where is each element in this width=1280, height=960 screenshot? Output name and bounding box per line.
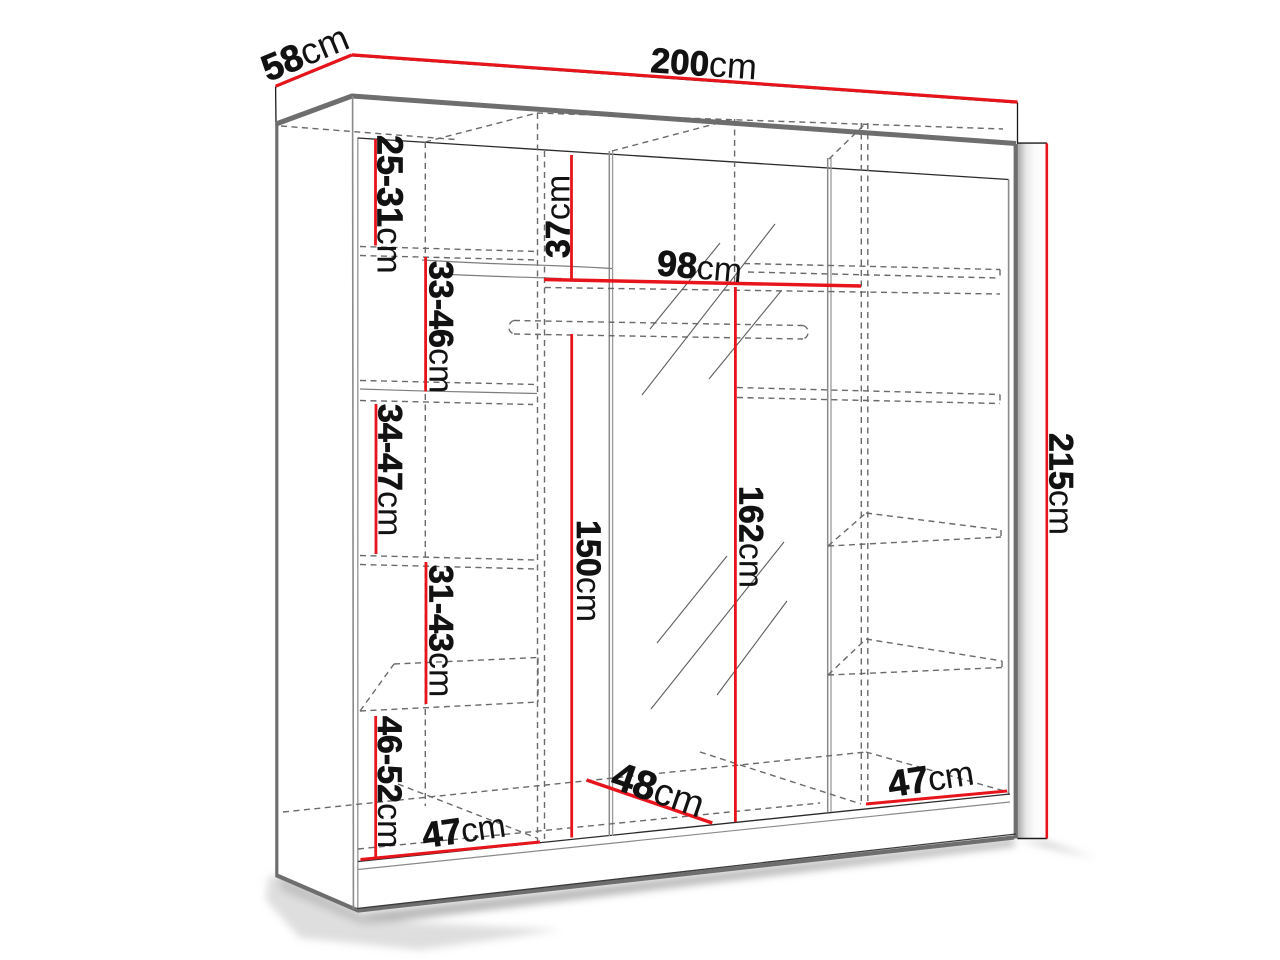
svg-text:33-46cm: 33-46cm bbox=[422, 261, 460, 393]
svg-text:150cm: 150cm bbox=[569, 520, 607, 622]
svg-text:200cm: 200cm bbox=[649, 39, 758, 87]
svg-text:25-31cm: 25-31cm bbox=[370, 135, 411, 274]
svg-text:162cm: 162cm bbox=[732, 486, 770, 588]
svg-text:31-43cm: 31-43cm bbox=[422, 565, 460, 697]
svg-text:46-52cm: 46-52cm bbox=[370, 716, 408, 848]
svg-text:37cm: 37cm bbox=[540, 175, 578, 258]
svg-text:215cm: 215cm bbox=[1042, 433, 1080, 535]
svg-text:34-47cm: 34-47cm bbox=[371, 404, 409, 536]
